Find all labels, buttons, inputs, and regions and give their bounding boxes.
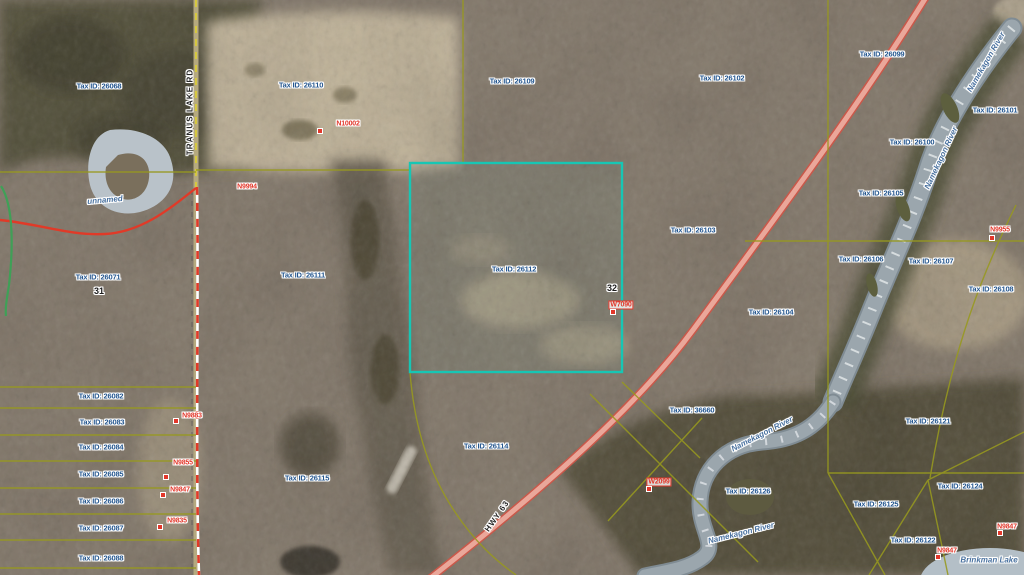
aerial-imagery	[0, 0, 1024, 575]
map-canvas[interactable]: Tax ID: 26068Tax ID: 26110Tax ID: 26109T…	[0, 0, 1024, 575]
selected-parcel-outline[interactable]	[410, 163, 622, 372]
